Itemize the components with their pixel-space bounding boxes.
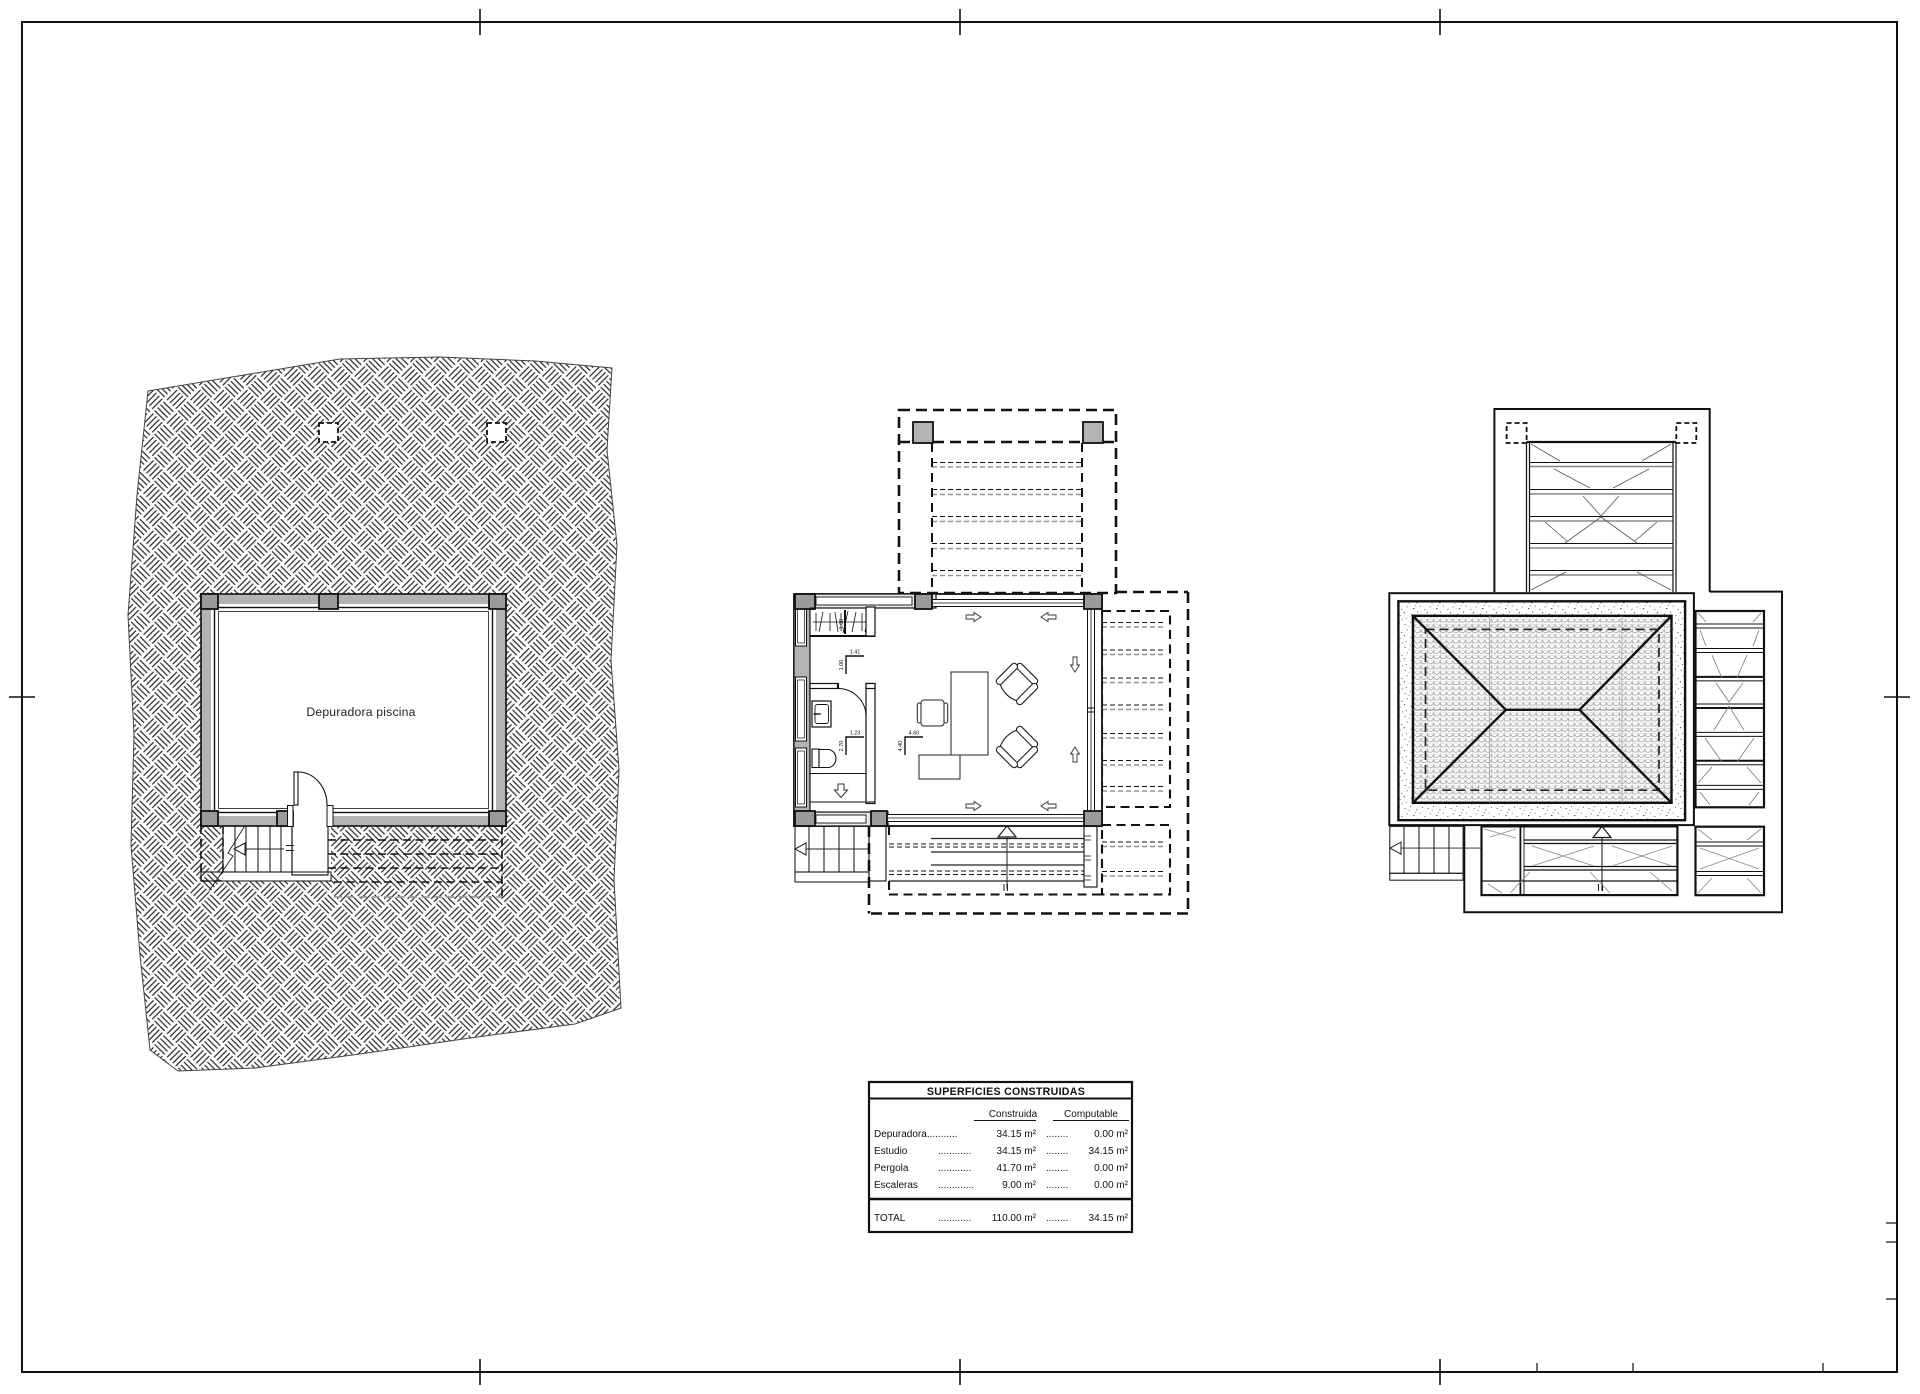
svg-text:0.00 m²: 0.00 m² [1094,1129,1129,1140]
svg-text:1.00: 1.00 [839,660,845,671]
svg-text:........: ........ [1046,1129,1068,1140]
svg-text:4.40: 4.40 [898,741,904,752]
svg-text:1.41: 1.41 [850,650,861,656]
svg-text:............: ............ [938,1163,971,1174]
svg-text:0.00 m²: 0.00 m² [1094,1163,1129,1174]
svg-text:............: ............ [938,1213,971,1224]
svg-text:............: ............ [938,1146,971,1157]
svg-text:........: ........ [1046,1163,1068,1174]
svg-text:Escaleras: Escaleras [874,1180,918,1191]
svg-text:1.23: 1.23 [850,731,861,737]
svg-text:Construida: Construida [989,1109,1038,1120]
svg-text:0.00 m²: 0.00 m² [1094,1180,1129,1191]
svg-text:4.60: 4.60 [909,731,920,737]
svg-text:Pergola: Pergola [874,1163,909,1174]
svg-text:TOTAL: TOTAL [874,1213,906,1224]
svg-text:SUPERFICIES CONSTRUIDAS: SUPERFICIES CONSTRUIDAS [927,1086,1085,1098]
svg-text:2.70: 2.70 [839,741,845,752]
svg-text:.............: ............. [938,1180,974,1191]
svg-text:41.70 m²: 41.70 m² [997,1163,1037,1174]
svg-text:Depuradora...........: Depuradora........... [874,1129,957,1140]
svg-text:........: ........ [1046,1180,1068,1191]
svg-text:1.60: 1.60 [839,619,845,630]
svg-text:Depuradora piscina: Depuradora piscina [306,705,415,719]
svg-text:Computable: Computable [1064,1109,1118,1120]
svg-text:9.00 m²: 9.00 m² [1002,1180,1037,1191]
svg-text:110.00 m²: 110.00 m² [992,1213,1037,1224]
svg-text:Estudio: Estudio [874,1146,908,1157]
svg-text:........: ........ [1046,1146,1068,1157]
svg-text:34.15 m²: 34.15 m² [997,1146,1037,1157]
svg-text:34.15 m²: 34.15 m² [1089,1146,1129,1157]
svg-text:........: ........ [1046,1213,1068,1224]
svg-text:34.15 m²: 34.15 m² [1089,1213,1129,1224]
svg-text:34.15 m²: 34.15 m² [997,1129,1037,1140]
